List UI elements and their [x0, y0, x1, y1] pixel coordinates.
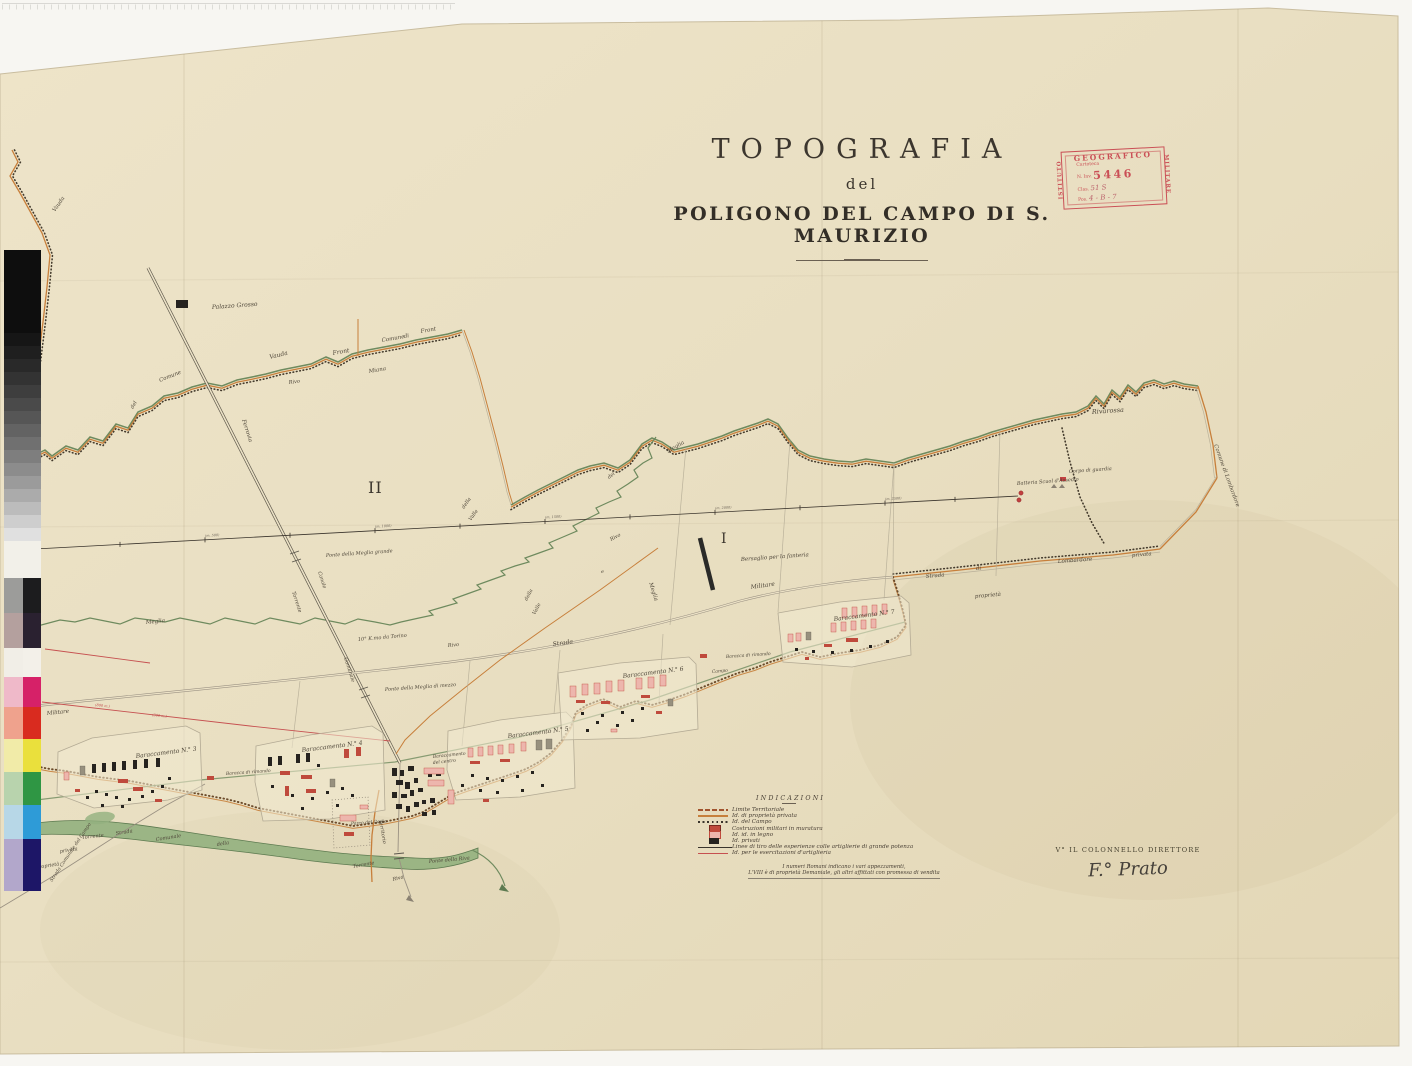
building — [428, 780, 444, 786]
legend-note: I numeri Romani indicano i vari appezzam… — [704, 864, 984, 878]
building — [448, 790, 454, 804]
building — [601, 714, 604, 717]
building — [414, 778, 418, 783]
paper-stain — [40, 810, 560, 1050]
building — [306, 753, 310, 762]
building — [336, 804, 339, 807]
building — [112, 762, 116, 771]
building — [501, 779, 504, 782]
building — [406, 806, 410, 812]
building — [133, 787, 143, 791]
legend-note-line2: L'VIII è di proprietà Demaniale, gli alt… — [704, 870, 984, 877]
legend-swatch-line-private — [698, 815, 728, 817]
calibration-patch — [4, 648, 23, 677]
title-line3: POLIGONO DEL CAMPO DI S. MAURIZIO — [612, 203, 1112, 247]
legend-item-label: Id. di proprietà privata — [732, 813, 797, 819]
building — [351, 794, 354, 797]
building — [806, 632, 811, 640]
building — [478, 747, 483, 756]
building — [410, 790, 414, 796]
calibration-patch — [4, 346, 41, 359]
title-line2: del — [612, 175, 1112, 193]
building — [392, 768, 397, 776]
legend-item-label: Costruzioni militari in muratura — [732, 826, 823, 832]
building — [805, 657, 809, 660]
building — [541, 784, 544, 787]
building — [326, 791, 329, 794]
building — [128, 798, 131, 801]
calibration-patch — [4, 250, 41, 333]
building — [430, 798, 435, 803]
building — [596, 721, 599, 724]
building — [576, 700, 585, 703]
building — [831, 623, 836, 632]
building — [796, 633, 801, 641]
building — [871, 619, 876, 628]
archive-stamp: GEOGRAFICO ISTITUTO MILITARE Cartoteca N… — [1061, 146, 1168, 209]
calibration-color-row — [4, 839, 41, 891]
calibration-patch — [4, 476, 41, 489]
building — [586, 729, 589, 732]
building — [488, 746, 493, 755]
building — [424, 768, 444, 774]
building — [271, 785, 274, 788]
map-label: di — [976, 566, 982, 572]
legend-swatch-rect-privati — [709, 838, 719, 844]
building — [401, 794, 407, 798]
legend-item-label: Id. per le esercitazioni d'artiglieria — [732, 850, 831, 856]
building — [144, 759, 148, 768]
building — [414, 802, 419, 807]
calibration-patch — [23, 805, 42, 839]
building — [301, 807, 304, 810]
stamp-clas-value: 51 S — [1090, 183, 1106, 192]
building — [601, 701, 610, 704]
building — [546, 739, 552, 749]
building — [161, 785, 164, 788]
building — [101, 804, 104, 807]
parcel-roman-numeral: I — [721, 531, 728, 547]
building — [306, 789, 316, 793]
calibration-patch — [4, 502, 41, 515]
calibration-patch — [23, 739, 42, 772]
building — [621, 711, 624, 714]
building — [80, 766, 85, 775]
building — [500, 759, 510, 762]
building — [156, 758, 160, 767]
building — [278, 756, 282, 765]
building — [95, 790, 98, 793]
building — [301, 775, 312, 779]
calibration-color-row — [4, 648, 41, 677]
legend-item-label: Id. del Campo — [732, 819, 772, 825]
building — [340, 815, 356, 821]
building — [461, 784, 464, 787]
stamp-inv-label: N. Inv. — [1077, 175, 1092, 181]
building — [296, 754, 300, 763]
building — [668, 699, 673, 706]
building — [831, 651, 834, 654]
map-title-block: TOPOGRAFIA del POLIGONO DEL CAMPO DI S. … — [612, 134, 1112, 264]
map-label: Rivo — [447, 642, 460, 649]
calibration-patch — [23, 839, 42, 891]
calibration-patch — [4, 411, 41, 424]
legend-item-label: Id. id. in legno — [732, 832, 773, 838]
title-rule — [796, 260, 928, 264]
building — [151, 790, 154, 793]
legend-item: Id. per le esercitazioni d'artiglieria — [698, 850, 1028, 856]
building — [700, 654, 707, 658]
building — [422, 812, 427, 816]
building — [606, 681, 612, 692]
map-label: e — [601, 569, 604, 575]
building — [536, 740, 542, 750]
building — [418, 788, 423, 792]
building — [516, 775, 519, 778]
legend-items: Limite TerritorialeId. di proprietà priv… — [698, 807, 1028, 857]
building — [344, 749, 349, 758]
building — [392, 792, 397, 798]
building — [176, 300, 188, 308]
building — [470, 761, 480, 764]
building — [141, 795, 144, 798]
calibration-patch — [4, 398, 41, 411]
scanned-map-page: Palazzo GrossoComunedelVaudaVaudaFrontRi… — [0, 0, 1412, 1066]
building — [75, 789, 80, 792]
building — [594, 683, 600, 694]
building — [521, 742, 526, 751]
calibration-patch — [4, 541, 41, 578]
calibration-patch — [4, 805, 23, 839]
calibration-patch — [23, 772, 42, 805]
calibration-patch — [4, 707, 23, 739]
calibration-color-row — [4, 772, 41, 805]
calibration-patch — [4, 359, 41, 372]
building — [788, 634, 793, 642]
building — [641, 695, 650, 698]
calibration-color-row — [4, 805, 41, 839]
building — [570, 686, 576, 697]
calibration-patch — [4, 463, 41, 476]
building — [846, 638, 858, 642]
building — [618, 680, 624, 691]
building — [631, 719, 634, 722]
building — [422, 800, 426, 804]
calibration-patch — [4, 528, 41, 541]
building — [869, 645, 872, 648]
building — [432, 810, 436, 815]
calibration-color-row — [4, 707, 41, 739]
building — [121, 805, 124, 808]
calibration-patch — [23, 578, 42, 613]
calibration-patch — [4, 437, 41, 450]
calibration-patch — [4, 450, 41, 463]
building — [155, 799, 162, 802]
building — [168, 777, 171, 780]
calibration-color-row — [4, 739, 41, 772]
building — [64, 772, 69, 780]
calibration-patch — [4, 333, 41, 346]
calibration-color-row — [4, 613, 41, 648]
stamp-pos-label: Pos. — [1078, 197, 1088, 202]
building — [122, 761, 126, 770]
legend-item-label: Id. privati — [732, 838, 760, 844]
calibration-patch — [4, 385, 41, 398]
legend-swatch-line-tiro-es — [698, 853, 728, 854]
color-calibration-bar — [4, 250, 41, 891]
building — [280, 771, 290, 775]
signature-caption: V° IL COLONNELLO DIRETTORE — [1048, 846, 1208, 854]
building — [330, 779, 335, 787]
building — [86, 796, 89, 799]
building — [861, 620, 866, 629]
building — [496, 791, 499, 794]
calibration-patch — [23, 613, 42, 648]
parcel-roman-numeral: II — [368, 478, 383, 497]
building — [400, 770, 404, 776]
firing-line-mark: (m. 500) — [205, 533, 220, 538]
building — [291, 794, 294, 797]
building — [486, 777, 489, 780]
calibration-patch — [23, 707, 42, 739]
calibration-patch — [4, 578, 23, 613]
building — [656, 711, 662, 714]
building — [483, 799, 489, 802]
building — [115, 796, 118, 799]
legend: INDICAZIONI Limite TerritorialeId. di pr… — [698, 795, 1028, 877]
legend-swatch-line-territorial — [698, 809, 728, 811]
calibration-color-row — [4, 578, 41, 613]
calibration-patch — [4, 489, 41, 502]
calibration-patch — [23, 648, 42, 677]
building — [824, 644, 832, 647]
building — [317, 764, 320, 767]
calibration-patch — [4, 515, 41, 528]
building — [812, 650, 815, 653]
calibration-patch — [4, 372, 41, 385]
building — [105, 793, 108, 796]
legend-swatch-line-tiro-gp — [698, 847, 732, 848]
stamp-clas-label: Clas. — [1077, 187, 1089, 193]
title-line1: TOPOGRAFIA — [612, 134, 1112, 165]
building — [285, 786, 289, 796]
building — [133, 760, 137, 769]
building — [886, 640, 889, 643]
building — [521, 789, 524, 792]
building — [616, 724, 619, 727]
stamp-inv-number: 5446 — [1093, 167, 1134, 182]
calibration-color-row — [4, 677, 41, 707]
building — [641, 707, 644, 710]
calibration-patch — [4, 739, 23, 772]
legend-title-rule — [782, 803, 796, 804]
building — [581, 712, 584, 715]
calibration-patch — [4, 772, 23, 805]
building — [356, 747, 361, 756]
building — [471, 774, 474, 777]
building — [636, 678, 642, 689]
legend-title: INDICAZIONI — [698, 795, 1028, 802]
building — [468, 748, 473, 757]
building — [396, 804, 402, 809]
building — [408, 766, 414, 771]
building — [611, 729, 617, 732]
building — [850, 649, 853, 652]
building — [531, 771, 534, 774]
calibration-patch — [4, 613, 23, 648]
building — [851, 621, 856, 630]
signature-block: V° IL COLONNELLO DIRETTORE F.° Prato — [1048, 846, 1208, 880]
building — [311, 797, 314, 800]
building — [341, 787, 344, 790]
building — [360, 805, 368, 809]
building — [795, 648, 798, 651]
building — [344, 832, 354, 836]
building — [92, 764, 96, 773]
building — [660, 675, 666, 686]
building — [582, 684, 588, 695]
legend-item-label: Linee di tiro delle esperienze colle art… — [732, 844, 913, 850]
building — [841, 622, 846, 631]
building — [405, 782, 410, 789]
calibration-patch — [23, 677, 42, 707]
calibration-patch — [4, 677, 23, 707]
stamp-pos-value: 4 - B - 7 — [1089, 193, 1117, 202]
building — [498, 745, 503, 754]
building — [268, 757, 272, 766]
building — [509, 744, 514, 753]
building — [102, 763, 106, 772]
calibration-patch — [4, 424, 41, 437]
signature-name: F.° Prato — [1048, 856, 1209, 883]
building — [479, 789, 482, 792]
calibration-patch — [4, 839, 23, 891]
legend-swatch-line-campo — [698, 821, 728, 823]
building — [118, 779, 128, 783]
building — [396, 780, 403, 785]
building — [207, 776, 214, 780]
stamp-org-left: ISTITUTO — [1056, 160, 1064, 199]
building — [648, 677, 654, 688]
